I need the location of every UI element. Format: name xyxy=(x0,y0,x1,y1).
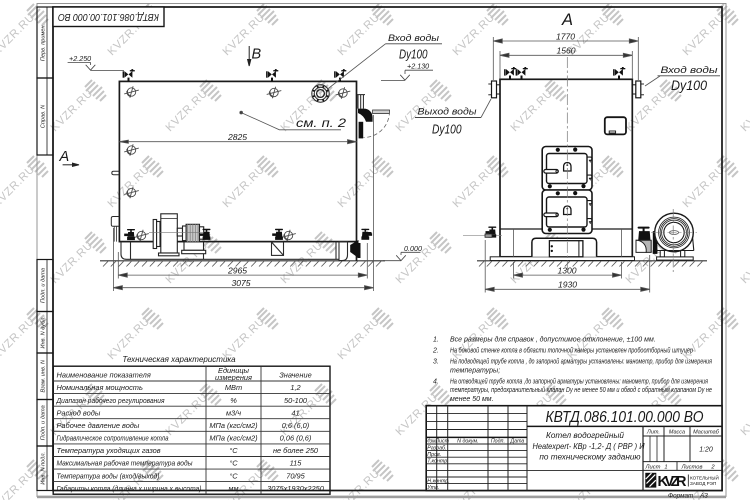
svg-text:Значение: Значение xyxy=(279,370,311,379)
svg-text:3075х1930х2250: 3075х1930х2250 xyxy=(267,484,325,493)
svg-text:1770: 1770 xyxy=(556,31,575,41)
svg-text:1: 1 xyxy=(664,464,667,470)
svg-text:А3: А3 xyxy=(699,492,708,499)
svg-text:КОТЕЛЬНЫЙ: КОТЕЛЬНЫЙ xyxy=(690,473,719,480)
svg-text:0.000: 0.000 xyxy=(404,244,422,253)
svg-text:КВТД.086.101.00.000 ВО: КВТД.086.101.00.000 ВО xyxy=(546,409,704,426)
svg-text:Лист: Лист xyxy=(645,464,661,470)
svg-text:Лист: Лист xyxy=(434,438,449,444)
svg-text:Расход воды: Расход воды xyxy=(57,408,101,417)
svg-text:Температура воды (вход/выход): Температура воды (вход/выход) xyxy=(57,471,160,480)
svg-text:Инв. N подл.: Инв. N подл. xyxy=(41,452,47,485)
svg-text:0,6 (6,0): 0,6 (6,0) xyxy=(282,421,310,430)
svg-text:МВт: МВт xyxy=(225,383,242,392)
svg-text:2965: 2965 xyxy=(227,265,247,275)
svg-text:3.: 3. xyxy=(433,359,439,366)
svg-text:Температура уходящих газов: Температура уходящих газов xyxy=(57,446,161,455)
svg-text:Heatexpert- КВр -1,2- Д ( РВР: Heatexpert- КВр -1,2- Д ( РВР ) И xyxy=(533,442,645,451)
svg-text:температуры, предохранительный: температуры, предохранительный клапан Dу… xyxy=(450,386,712,394)
svg-text:Диапазон рабочего регулировани: Диапазон рабочего регулирования xyxy=(56,396,165,405)
svg-text:Масса: Масса xyxy=(669,430,685,436)
svg-text:температуры;: температуры; xyxy=(450,367,500,374)
svg-text:Все размеры для справок , допу: Все размеры для справок , допустимое отк… xyxy=(450,336,656,344)
svg-text:+2.250: +2.250 xyxy=(69,54,91,63)
svg-text:На боковой стенке котла в обла: На боковой стенке котла в области топочн… xyxy=(450,347,693,355)
svg-text:Номинальная мощность: Номинальная мощность xyxy=(57,383,143,392)
svg-text:МПа (кгс/см2): МПа (кгс/см2) xyxy=(209,434,258,443)
svg-text:Наименование показателя: Наименование показателя xyxy=(57,370,151,379)
svg-text:Подп.: Подп. xyxy=(491,438,505,444)
svg-text:B: B xyxy=(252,47,262,63)
svg-text:%: % xyxy=(230,396,237,405)
svg-text:измерения: измерения xyxy=(215,373,252,382)
svg-text:Гидравлическое сопротивление к: Гидравлическое сопротивление котла xyxy=(57,434,169,443)
svg-text:м3/ч: м3/ч xyxy=(226,408,241,417)
svg-text:см. п. 2: см. п. 2 xyxy=(296,118,347,130)
svg-text:50-100: 50-100 xyxy=(284,396,308,405)
svg-text:1.: 1. xyxy=(433,337,439,344)
svg-text:0,06 (0,6): 0,06 (0,6) xyxy=(280,434,312,443)
svg-text:не более 250: не более 250 xyxy=(273,446,319,455)
svg-text:3075: 3075 xyxy=(231,278,250,288)
svg-text:Вход воды: Вход воды xyxy=(661,65,718,76)
svg-text:На подводящей трубе котла , д: На подводящей трубе котла , до запорной … xyxy=(450,358,712,366)
svg-text:1,2: 1,2 xyxy=(290,383,300,392)
svg-text:МПа (кгс/см2): МПа (кгс/см2) xyxy=(209,421,258,430)
svg-text:Dy100: Dy100 xyxy=(399,48,428,62)
svg-text:Справ. N: Справ. N xyxy=(41,104,47,128)
svg-text:Dy100: Dy100 xyxy=(671,78,707,93)
svg-text:Котел водогрейный: Котел водогрейный xyxy=(546,431,624,440)
svg-text:2.: 2. xyxy=(432,348,439,355)
svg-text:по техническому заданию: по техническому заданию xyxy=(539,453,640,462)
svg-text:Листов: Листов xyxy=(680,464,702,470)
svg-text:Дата: Дата xyxy=(509,438,524,444)
svg-text:4.: 4. xyxy=(433,378,439,385)
svg-text:Габариты котла (длинна х ширин: Габариты котла (длинна х ширина х высота… xyxy=(57,484,202,493)
svg-text:1930: 1930 xyxy=(558,280,577,290)
svg-text:Вход воды: Вход воды xyxy=(388,33,439,44)
svg-text:Масштаб: Масштаб xyxy=(693,430,720,436)
svg-text:Техническая характеристика: Техническая характеристика xyxy=(122,355,236,364)
svg-text:Выход воды: Выход воды xyxy=(418,106,477,117)
svg-text:°С: °С xyxy=(229,446,238,455)
svg-text:2825: 2825 xyxy=(227,132,247,142)
svg-text:КВТД.086.101.00.000 ВО: КВТД.086.101.00.000 ВО xyxy=(58,11,159,23)
svg-text:Перв. примен.: Перв. примен. xyxy=(41,24,47,61)
svg-text:Пров.: Пров. xyxy=(427,452,441,458)
svg-text:менее 50 мм.: менее 50 мм. xyxy=(450,396,494,403)
svg-text:Инв. N дубл.: Инв. N дубл. xyxy=(41,316,47,348)
svg-text:°С: °С xyxy=(229,459,238,468)
svg-text:41: 41 xyxy=(291,408,299,417)
svg-text:Рабочее давление воды: Рабочее давление воды xyxy=(57,421,140,430)
svg-text:+2.130: +2.130 xyxy=(407,62,429,71)
svg-text:Формат: Формат xyxy=(668,492,694,499)
svg-text:115: 115 xyxy=(290,459,303,468)
svg-text:70/95: 70/95 xyxy=(286,471,305,480)
svg-text:ЗАВОД РЭП: ЗАВОД РЭП xyxy=(690,481,716,486)
svg-text:Dy100: Dy100 xyxy=(432,123,462,137)
svg-text:Разраб.: Разраб. xyxy=(427,445,446,451)
svg-text:А: А xyxy=(561,11,573,29)
svg-text:°С: °С xyxy=(229,471,238,480)
svg-text:мм: мм xyxy=(228,484,238,493)
svg-text:1:20: 1:20 xyxy=(699,447,713,454)
svg-text:Подп. и дата: Подп. и дата xyxy=(41,405,47,440)
svg-text:1560: 1560 xyxy=(556,46,575,56)
svg-text:KVZR: KVZR xyxy=(658,474,688,490)
svg-text:Подп. и дата: Подп. и дата xyxy=(41,268,47,303)
svg-text:Лит.: Лит. xyxy=(646,430,660,436)
svg-text:1300: 1300 xyxy=(557,265,576,275)
svg-text:А: А xyxy=(59,149,70,165)
svg-text:Н.контр.: Н.контр. xyxy=(427,478,449,484)
svg-text:Взам. инв. N: Взам. инв. N xyxy=(41,359,47,393)
svg-text:N докум.: N докум. xyxy=(457,438,478,444)
svg-text:Утв.: Утв. xyxy=(427,485,439,491)
svg-text:На отводящей трубе котла ,до з: На отводящей трубе котла ,до запорной ар… xyxy=(450,377,708,385)
svg-text:Максимальная рабочая температу: Максимальная рабочая температура воды xyxy=(57,459,193,468)
svg-text:Т.контр.: Т.контр. xyxy=(427,459,448,465)
